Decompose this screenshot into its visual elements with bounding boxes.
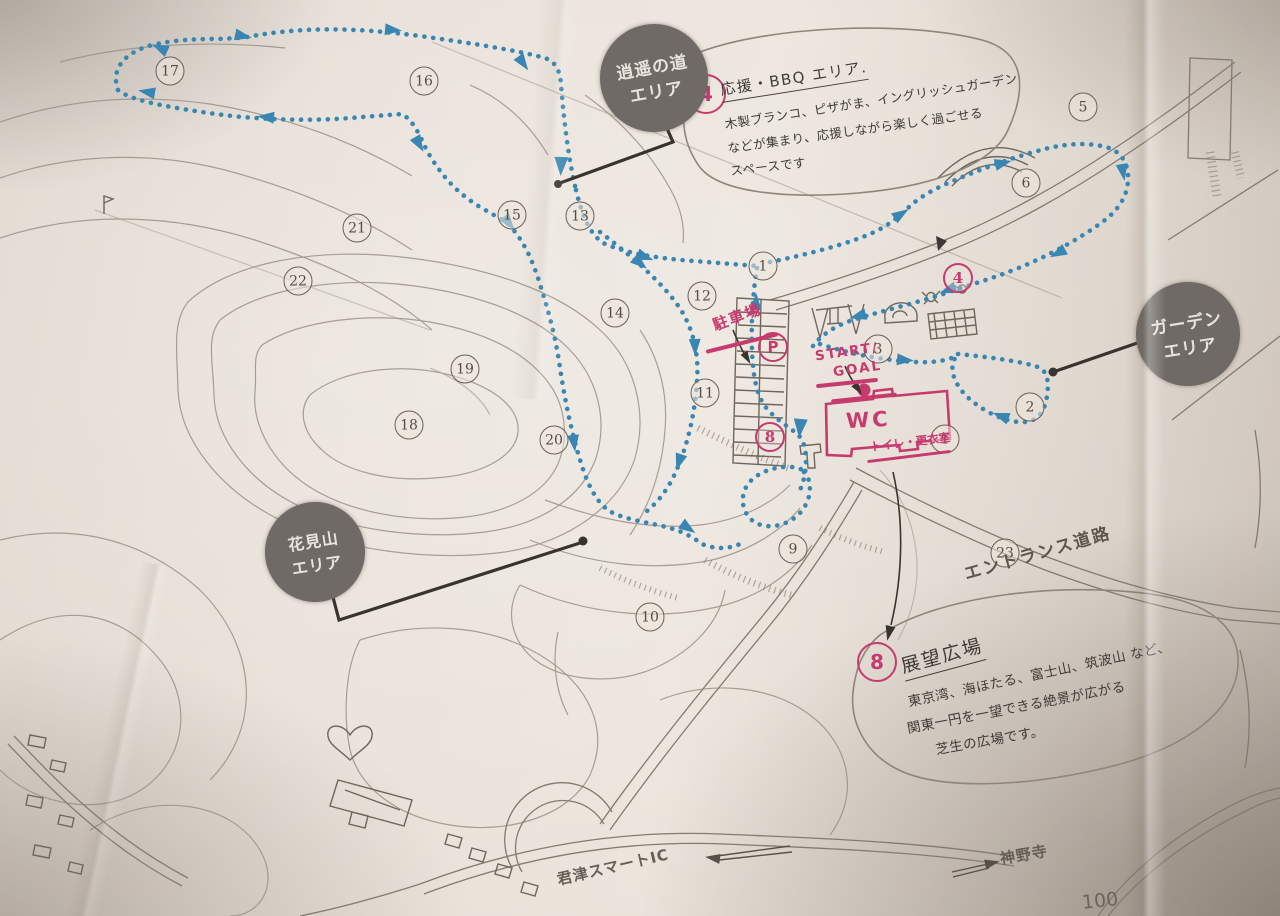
map-marker-6: 6 [1012,169,1041,198]
scale-number-label: 100 [1081,890,1119,913]
map-marker-8: 8 [755,422,785,452]
wc-label: WC [845,409,891,432]
map-marker-11: 11 [691,379,720,408]
map-marker-1: 1 [749,252,778,281]
map-marker-18: 18 [395,411,424,440]
map-marker-12: 12 [688,282,717,311]
map-marker-19: 19 [451,355,480,384]
map-marker-5: 5 [1069,93,1098,122]
map-marker-16: 16 [410,67,439,96]
marker-layer: 171656151321122121431911218201923104848 [0,0,1280,916]
map-marker-20: 20 [540,426,569,455]
map-marker-10: 10 [636,603,665,632]
map-marker-15: 15 [498,201,527,230]
map-marker-13: 13 [566,202,595,231]
map-marker-4: 4 [943,263,973,293]
map-marker-14: 14 [601,299,630,328]
park-map-photo: 171656151321122121431911218201923104848 … [0,0,1280,916]
map-marker-9: 9 [779,535,808,564]
map-marker-8: 8 [857,642,897,682]
map-marker-21: 21 [343,214,372,243]
parking-p-circle: P [758,332,788,362]
map-marker-17: 17 [156,57,185,86]
map-marker-22: 22 [284,267,313,296]
map-marker-2: 2 [1016,393,1045,422]
